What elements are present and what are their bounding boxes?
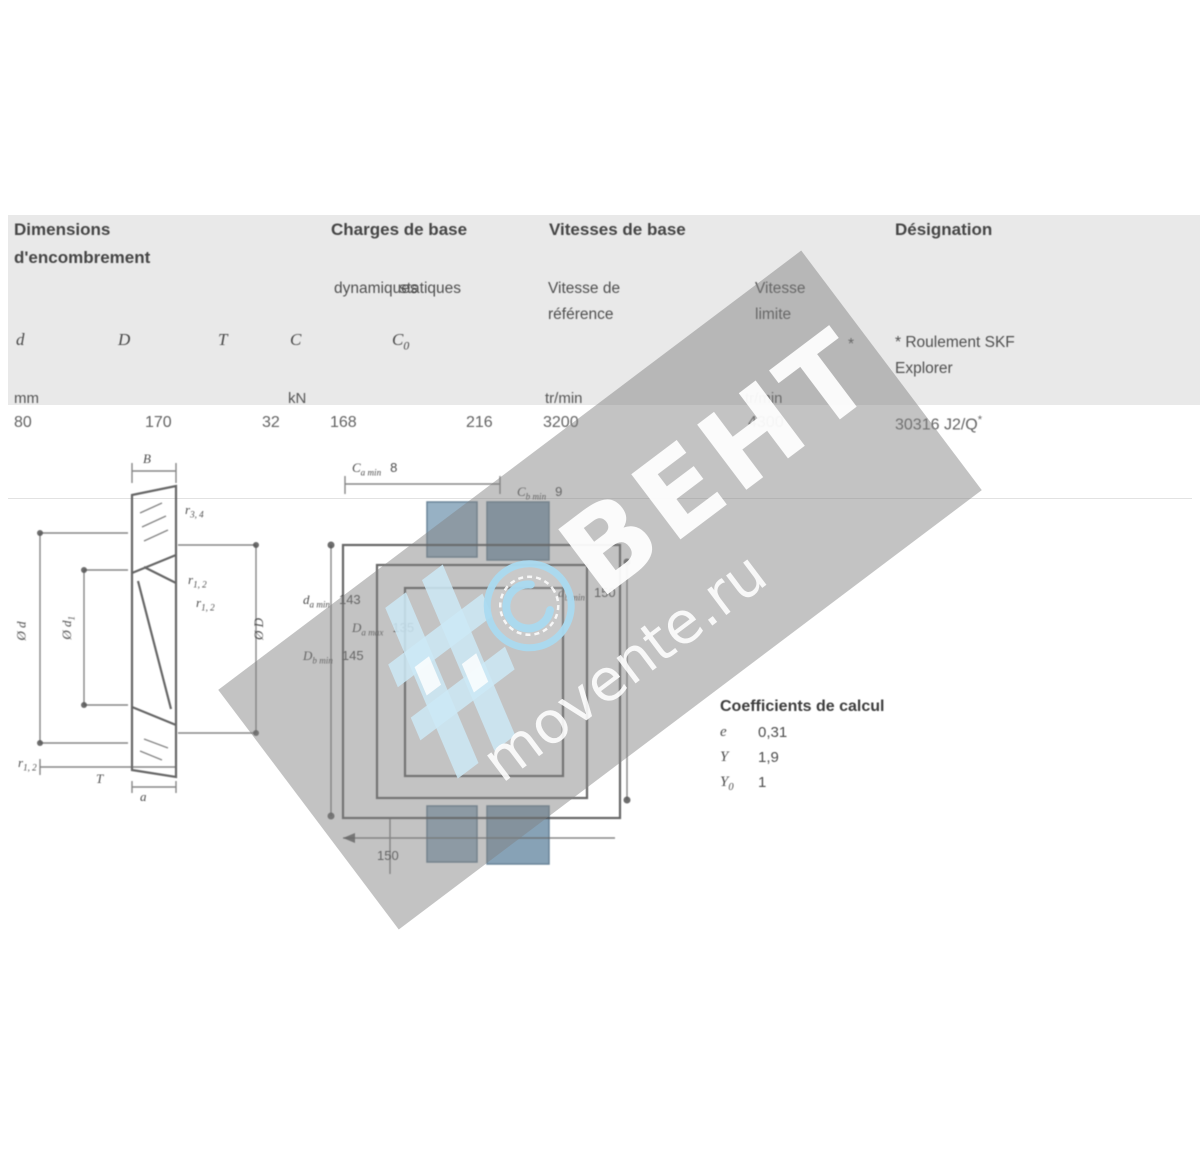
- value-C0: 216: [466, 414, 493, 432]
- label-Db-min: Db min145: [303, 648, 364, 666]
- label-B: B: [143, 451, 151, 467]
- label-da-min: da min143: [303, 592, 361, 610]
- subheader-limspeed-line1: Vitesse: [755, 280, 806, 298]
- label-r12-right-lower: r1, 2: [196, 595, 215, 613]
- unit-kn: kN: [288, 390, 306, 407]
- value-D: 170: [145, 414, 172, 432]
- calc-row-e: e 0,31: [720, 724, 885, 743]
- label-db-min: db min150: [558, 585, 616, 603]
- subheader-limspeed-line2: limite: [755, 306, 791, 324]
- group-dimensions-line1: Dimensions: [14, 220, 110, 240]
- calc-row-Y0: Y0 1: [720, 774, 885, 793]
- group-dimensions-line2: d'encombrement: [14, 248, 150, 268]
- label-Ca: Ca min8: [352, 460, 397, 478]
- label-a-offset: a: [140, 789, 147, 805]
- star-marker: *: [848, 336, 854, 354]
- label-outer-diameter: Ø D: [251, 618, 267, 640]
- subheader-refspeed-line1: Vitesse de: [548, 280, 620, 298]
- note-skf-line2: Explorer: [895, 360, 953, 378]
- label-T-width: T: [96, 771, 103, 787]
- group-designation: Désignation: [895, 220, 992, 240]
- label-r12-right-upper: r1, 2: [188, 572, 207, 590]
- subheader-refspeed-line2: référence: [548, 306, 613, 324]
- value-d: 80: [14, 414, 32, 432]
- value-lim-speed: 4300: [748, 414, 784, 432]
- col-symbol-d: d: [16, 330, 25, 350]
- subheader-static: statiques: [399, 280, 461, 298]
- note-skf-line1: * Roulement SKF: [895, 334, 1015, 352]
- label-r12-bottom: r1, 2: [18, 755, 37, 773]
- col-symbol-C: C: [290, 330, 301, 350]
- value-C: 168: [330, 414, 357, 432]
- calculation-factors: Coefficients de calcul e 0,31 Y 1,9 Y0 1: [720, 698, 885, 799]
- group-loads: Charges de base: [331, 220, 467, 240]
- figure-bearing-section: B r3, 4 r1, 2 r1, 2 Ø d Ø d1 Ø D r1, 2 T…: [10, 455, 300, 805]
- col-symbol-T: T: [218, 330, 227, 350]
- group-speeds: Vitesses de base: [549, 220, 686, 240]
- unit-mm: mm: [14, 390, 39, 407]
- calc-row-Y: Y 1,9: [720, 749, 885, 768]
- datasheet-page: Dimensions d'encombrement Charges de bas…: [0, 0, 1200, 1165]
- value-designation: 30316 J2/Q*: [895, 414, 982, 434]
- value-ref-speed: 3200: [543, 414, 579, 432]
- label-Cb: Cb min9: [517, 484, 562, 502]
- label-r34: r3, 4: [185, 502, 204, 520]
- unit-rpm-lim: tr/min: [745, 390, 783, 407]
- calc-title: Coefficients de calcul: [720, 698, 885, 716]
- label-bottom-value: 150: [368, 848, 399, 864]
- label-d1-diameter: Ø d1: [59, 616, 77, 640]
- col-symbol-C0: C0: [392, 330, 409, 353]
- figure-mounting-dimensions: Ca min8 Cb min9 da min143 Da max135 Db m…: [300, 450, 645, 880]
- label-bore-diameter: Ø d: [14, 621, 30, 640]
- label-Da-max: Da max135: [352, 620, 414, 638]
- value-T: 32: [262, 414, 280, 432]
- col-symbol-D: D: [118, 330, 130, 350]
- unit-rpm-ref: tr/min: [545, 390, 583, 407]
